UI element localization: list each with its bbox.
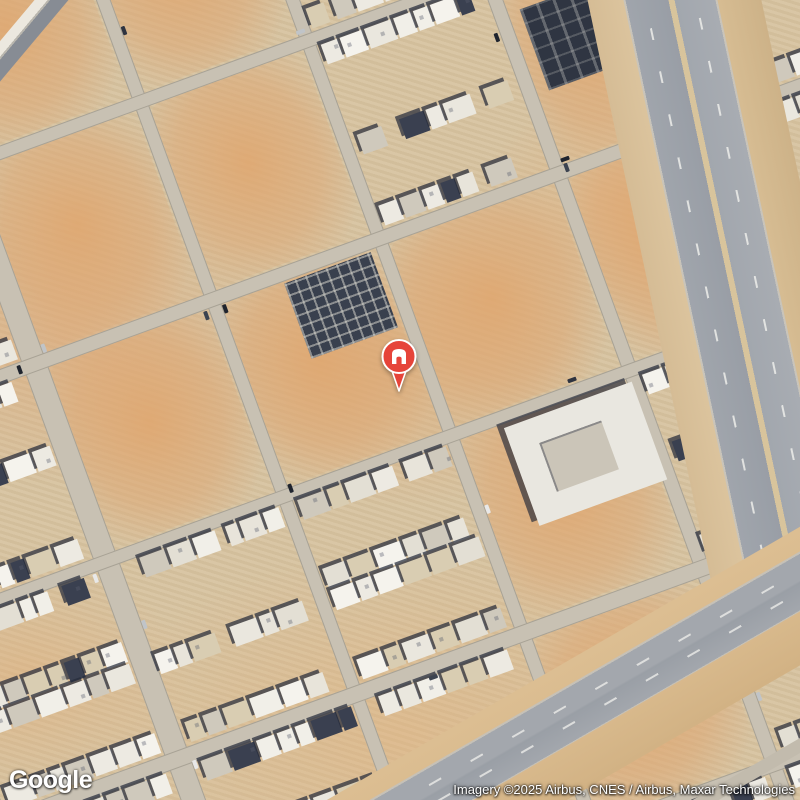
rooftop-detail [416, 642, 421, 647]
rooftop-detail [195, 722, 200, 727]
imagery-attribution: Imagery ©2025 Airbus, CNES / Airbus, Max… [453, 782, 795, 797]
building [429, 0, 460, 25]
rooftop-detail [429, 192, 434, 197]
rooftop-detail [446, 457, 451, 462]
rooftop-detail [195, 644, 200, 649]
rooftop-detail [465, 0, 470, 3]
satellite-map[interactable]: Google Imagery ©2025 Airbus, CNES / Airb… [0, 0, 800, 800]
home-pin-icon [377, 337, 421, 395]
rooftop-detail [61, 675, 66, 680]
building [229, 617, 264, 647]
rooftop-detail [254, 528, 259, 533]
rooftop-detail [429, 685, 434, 690]
rooftop-detail [380, 31, 385, 36]
rooftop-detail [168, 658, 173, 663]
building [4, 453, 38, 482]
rooftop-detail [80, 694, 85, 699]
location-pin[interactable] [377, 337, 421, 395]
rooftop-detail [46, 458, 51, 463]
rooftop-detail [0, 718, 3, 723]
rooftop-detail [313, 498, 318, 503]
rooftop-detail [392, 654, 397, 659]
rooftop-detail [141, 741, 146, 746]
rooftop-detail [286, 733, 291, 738]
rooftop-detail [105, 653, 110, 658]
rooftop-detail [287, 619, 292, 624]
compound-courtyard [539, 420, 619, 491]
rooftop-detail [507, 171, 512, 176]
rooftop-detail [19, 565, 24, 570]
rooftop-detail [379, 552, 384, 557]
rooftop-detail [419, 15, 424, 20]
building [357, 126, 389, 155]
building [399, 110, 431, 139]
building [0, 381, 18, 406]
rooftop-detail [87, 660, 92, 665]
rooftop-detail [364, 584, 369, 589]
rooftop-detail [4, 352, 9, 357]
google-logo[interactable]: Google [9, 766, 92, 795]
rooftop-detail [439, 637, 444, 642]
building [442, 94, 476, 123]
rooftop-detail [250, 747, 255, 752]
building [482, 80, 514, 109]
rooftop-detail [494, 615, 499, 620]
rooftop-detail [649, 383, 654, 388]
building [275, 601, 309, 630]
rooftop-detail [448, 108, 453, 113]
rooftop-detail [266, 618, 271, 623]
rooftop-detail [75, 586, 80, 591]
rooftop-detail [178, 548, 183, 553]
rooftop-detail [334, 44, 339, 49]
rooftop-detail [347, 43, 352, 48]
building [188, 633, 221, 662]
